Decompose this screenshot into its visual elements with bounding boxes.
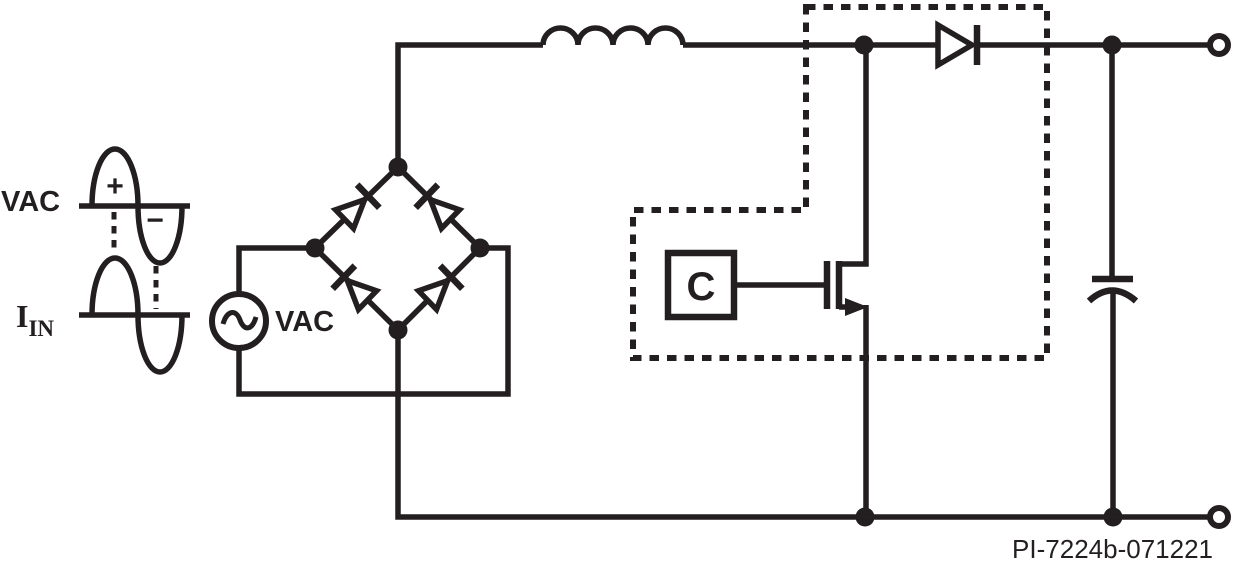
output-terminal-negative xyxy=(1210,508,1228,526)
boost-diode xyxy=(938,25,1210,65)
iin-label-subscript: IN xyxy=(28,316,54,341)
boost-diode-triangle xyxy=(938,25,972,65)
power-mosfet xyxy=(827,36,875,527)
vac-waveform-label: VAC xyxy=(1,186,60,218)
iin-waveform: IIN xyxy=(16,258,190,372)
rectified-rail-wire xyxy=(398,45,543,167)
bridge-diamond xyxy=(315,167,480,330)
ground-return-rail xyxy=(398,330,1210,517)
bridge-right-node-dot xyxy=(471,239,490,258)
iin-label-base: I xyxy=(16,298,28,334)
minus-sign: − xyxy=(146,204,164,237)
figure-part-number: PI-7224b-071221 xyxy=(1012,534,1213,564)
capacitor-top-junction-dot xyxy=(1103,36,1122,55)
drain-junction-dot xyxy=(855,36,874,55)
controller: C xyxy=(668,253,824,317)
ac-source-top-wire xyxy=(239,248,315,294)
vac-waveform: VAC + − xyxy=(1,149,190,263)
ac-source: VAC xyxy=(212,248,508,394)
inductor-coils xyxy=(543,28,683,45)
mosfet-drain-wire xyxy=(840,45,866,264)
plus-sign: + xyxy=(106,170,124,203)
controller-label: C xyxy=(687,265,716,309)
iin-waveform-label: IIN xyxy=(16,298,54,341)
output-terminal-positive xyxy=(1210,36,1228,54)
output-capacitor xyxy=(1089,36,1136,527)
schematic-drawing: VAC + − IIN VAC xyxy=(0,0,1233,569)
bridge-left-node-dot xyxy=(306,239,325,258)
ac-source-label: VAC xyxy=(275,306,334,338)
pfc-boost-schematic: VAC + − IIN VAC xyxy=(0,0,1233,569)
